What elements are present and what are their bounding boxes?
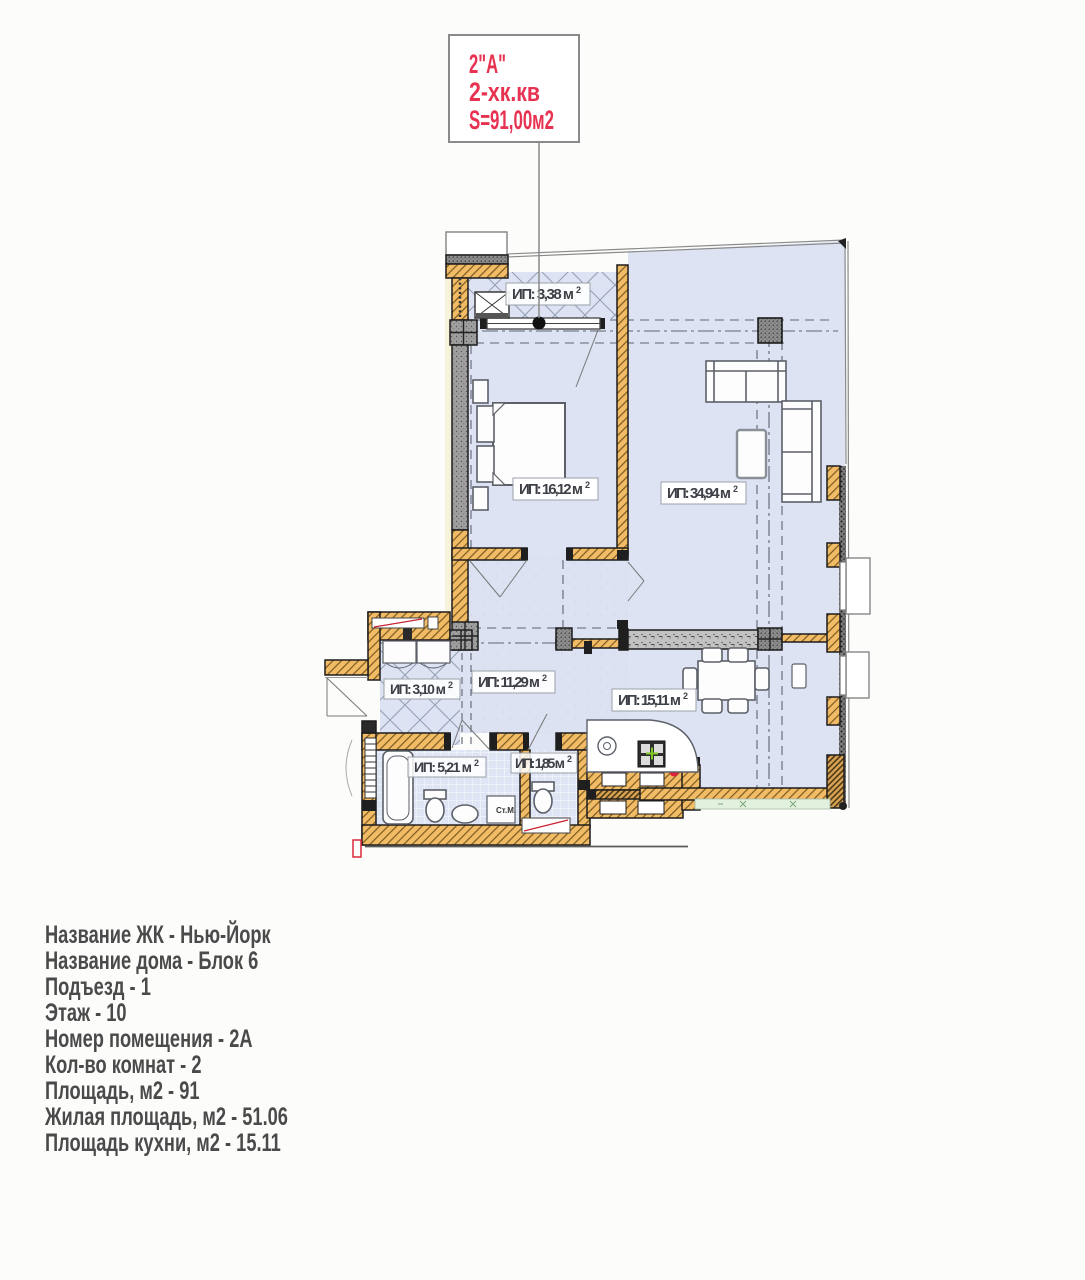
svg-text:ИП: 3,10 м: ИП: 3,10 м <box>390 681 446 697</box>
svg-text:ИП: 5,21 м: ИП: 5,21 м <box>414 759 472 775</box>
svg-text:ИП: 16,12 м: ИП: 16,12 м <box>519 481 583 498</box>
svg-text:2: 2 <box>576 285 581 295</box>
svg-text:ИП: 11,29 м: ИП: 11,29 м <box>478 674 540 691</box>
svg-text:ИП: 3,38 м: ИП: 3,38 м <box>512 286 574 303</box>
svg-text:2: 2 <box>733 484 738 494</box>
svg-text:2: 2 <box>683 691 688 701</box>
svg-text:S=91,00м2: S=91,00м2 <box>469 105 554 135</box>
svg-text:Ст.М.: Ст.М. <box>496 806 516 815</box>
svg-text:2"А": 2"А" <box>469 49 506 79</box>
svg-text:2: 2 <box>474 758 479 768</box>
svg-text:2-хк.кв: 2-хк.кв <box>469 77 540 107</box>
svg-text:2: 2 <box>448 680 453 690</box>
svg-text:2: 2 <box>585 480 590 490</box>
svg-text:ИП: 15,11 м: ИП: 15,11 м <box>618 692 681 709</box>
svg-text:2: 2 <box>542 673 547 683</box>
svg-text:2: 2 <box>567 754 572 764</box>
svg-text:ИП: 34,94 м: ИП: 34,94 м <box>667 485 731 502</box>
svg-text:ИП: 1,85 м: ИП: 1,85 м <box>515 755 565 771</box>
